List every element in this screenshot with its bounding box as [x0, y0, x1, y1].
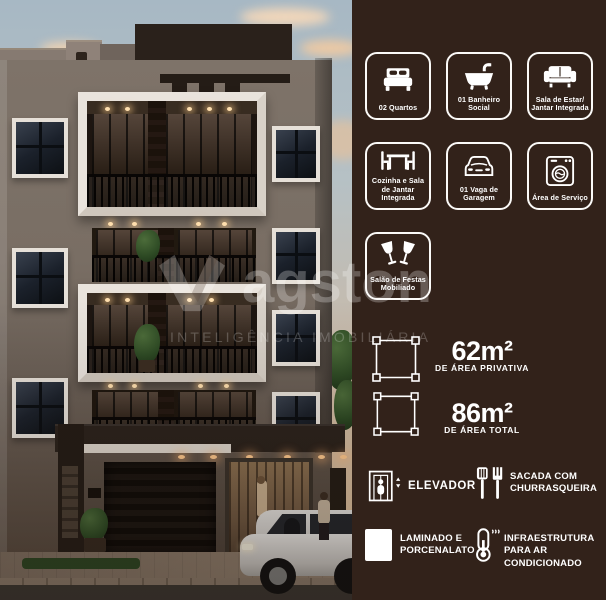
window — [12, 248, 68, 308]
balcony-frame-upper — [78, 92, 266, 216]
feature-card-label: 02 Quartos — [379, 104, 418, 113]
balcony-frame-lower — [78, 284, 266, 382]
feature-card-label: 01 Banheiro Social — [450, 96, 508, 113]
balcony-bbq-label: SACADA COM CHURRASQUEIRA — [510, 471, 602, 496]
tree — [334, 380, 352, 430]
feature-card-kitchen: Cozinha e Sala de Jantar Integrada — [365, 142, 431, 210]
intercom-plaque — [88, 488, 101, 498]
area-dimensions-icon — [372, 392, 420, 436]
garage-door — [104, 462, 216, 554]
feature-card-party-room: Salão de Festas Mobiliado — [365, 232, 431, 300]
suv-car — [238, 506, 352, 596]
feature-card-label: Salão de Festas Mobiliado — [369, 276, 427, 293]
feature-card-label: Cozinha e Sala de Jantar Integrada — [369, 177, 427, 203]
floor-tile-icon — [365, 529, 392, 561]
elevator-icon — [368, 466, 402, 506]
feature-card-label: Área de Serviço — [532, 194, 588, 203]
grass-strip — [22, 558, 140, 569]
dining-table-icon — [379, 142, 417, 175]
info-panel: 02 Quartos 01 Banheiro Social Sala de Es… — [352, 0, 606, 600]
roof-beam — [160, 74, 290, 83]
feature-cards-grid: 02 Quartos 01 Banheiro Social Sala de Es… — [365, 52, 593, 300]
person-on-sidewalk — [316, 492, 331, 540]
feature-card-bathroom: 01 Banheiro Social — [446, 52, 512, 120]
feature-card-garage: 01 Vaga de Garagem — [446, 142, 512, 210]
plant-pot — [139, 360, 155, 372]
car-icon — [460, 144, 498, 184]
window — [272, 126, 320, 182]
barbecue-tools-icon — [476, 466, 504, 502]
thermometer-icon — [473, 526, 500, 565]
washing-machine-icon — [545, 144, 575, 192]
car-headlight — [242, 544, 253, 550]
area-dimensions-icon — [372, 336, 420, 382]
feature-card-laundry: Área de Serviço — [527, 142, 593, 210]
cheers-glasses-icon — [381, 234, 415, 274]
window — [272, 310, 320, 366]
cloud — [300, 40, 352, 56]
property-flyer: 02 Quartos 01 Banheiro Social Sala de Es… — [0, 0, 606, 600]
feature-card-label: 01 Vaga de Garagem — [450, 186, 508, 203]
feature-card-living-room: Sala de Estar/ Jantar Integrada — [527, 52, 593, 120]
feature-card-bedrooms: 02 Quartos — [365, 52, 431, 120]
feature-card-label: Sala de Estar/ Jantar Integrada — [531, 96, 589, 113]
private-area-caption: DE ÁREA PRIVATIVA — [420, 363, 544, 373]
bathtub-icon — [463, 54, 495, 94]
facade-left-highlight — [0, 60, 7, 560]
ac-infrastructure-label: INFRAESTRUTURA PARA AR CONDICIONADO — [504, 533, 606, 570]
elevator-label: ELEVADOR — [408, 480, 476, 492]
balcony-slab — [78, 444, 231, 453]
sofa-icon — [542, 54, 578, 94]
recessed-balcony-mid — [92, 228, 256, 282]
bed-icon — [381, 54, 415, 102]
window — [12, 118, 68, 178]
window — [272, 228, 320, 284]
building-render-scene — [0, 0, 352, 600]
shrub-pot — [84, 538, 106, 552]
total-area-caption: DE ÁREA TOTAL — [420, 425, 544, 435]
mailbox-panel — [62, 466, 78, 538]
